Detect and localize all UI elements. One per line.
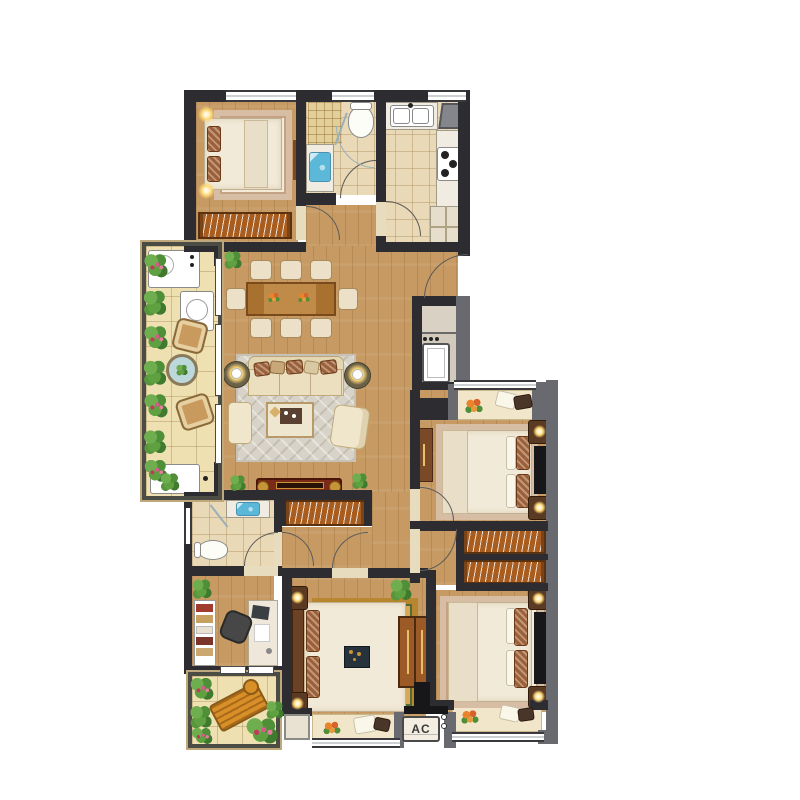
wardrobe-strip-2 xyxy=(462,560,546,584)
master-wardrobe-divider xyxy=(414,618,416,686)
ac-drain-1 xyxy=(441,714,447,720)
bath-top-sink xyxy=(309,152,331,182)
master-pillow-1 xyxy=(306,610,320,652)
column-bedroom-br xyxy=(534,612,546,684)
bedroom-br-pillow-2 xyxy=(514,650,528,688)
sofa-pillow-5 xyxy=(319,359,338,375)
bedroom-right-lamp-1 xyxy=(533,425,546,438)
hallway-closet xyxy=(284,500,366,526)
tray-shell-2 xyxy=(292,414,296,418)
wall-master-left xyxy=(282,568,292,716)
bay-br-pillow-dark xyxy=(517,707,535,722)
balcony-slider-2 xyxy=(215,324,222,396)
books-2 xyxy=(196,615,213,623)
wall-topblock-bottom-r xyxy=(376,242,470,252)
balcony2-plants-1 xyxy=(190,676,214,702)
living-plant-left xyxy=(230,474,246,492)
books-1 xyxy=(196,604,213,612)
side-lamp-right xyxy=(352,369,363,380)
floor-plan: AC xyxy=(0,0,800,800)
wall-bedroom2-left xyxy=(410,390,420,489)
wall-right-exterior xyxy=(546,380,558,742)
ac-drain-2 xyxy=(441,723,447,729)
dining-chair-1 xyxy=(250,260,272,280)
bay-br-flowers xyxy=(458,706,482,728)
coffee-tray xyxy=(280,408,302,424)
toilet-lower-tank xyxy=(194,542,201,558)
bedroom-br-pillow-1 xyxy=(514,608,528,646)
fridge-inner xyxy=(427,348,445,378)
toilet-lower xyxy=(198,540,228,560)
wall-top-left xyxy=(184,90,196,252)
wall-niche-left xyxy=(412,296,422,390)
threshold-bed1 xyxy=(296,206,306,240)
column-bedroom2 xyxy=(534,446,546,494)
bedroom-br-throw xyxy=(448,602,478,702)
balcony-plants-4 xyxy=(144,358,166,388)
window-bath2 xyxy=(184,508,192,544)
master-bay-pier xyxy=(284,714,310,740)
sofa-pillow-4 xyxy=(303,360,320,375)
bedroom-br-lamp-1 xyxy=(532,592,545,605)
balcony-plants-2 xyxy=(144,288,166,318)
bay-window-master xyxy=(312,738,400,748)
pouf-left xyxy=(228,402,252,444)
threshold-vestibule2 xyxy=(410,529,420,573)
window-top-3 xyxy=(428,90,466,102)
hallway-vertical-floor xyxy=(372,492,410,578)
burner-2 xyxy=(449,160,457,168)
balcony-plants-1 xyxy=(144,252,168,280)
master-wardrobe-handle-1 xyxy=(407,630,409,674)
dining-chair-4 xyxy=(250,318,272,338)
window-top-2 xyxy=(332,90,374,102)
dining-flowers-1 xyxy=(266,290,282,305)
closet-stub-right xyxy=(364,498,372,526)
entry-faucet-1 xyxy=(423,337,427,341)
balcony2-plants-2 xyxy=(190,704,212,730)
threshold-bedroom2 xyxy=(410,489,420,521)
bay-master-flowers xyxy=(320,718,344,738)
threshold-master xyxy=(332,568,368,578)
toilet-top-tank xyxy=(350,102,372,110)
bedroom-right-pillow-w2 xyxy=(506,474,516,508)
balcony2-plants-3 xyxy=(190,728,214,744)
dining-flowers-2 xyxy=(296,290,312,305)
wall-bath-kitchen xyxy=(376,100,386,202)
balcony-slider-1 xyxy=(215,258,222,316)
wall-wardrobe-divider xyxy=(458,554,548,560)
ac-label: AC xyxy=(411,722,430,736)
threshold-study xyxy=(244,566,278,576)
bedroom-br-lamp-2 xyxy=(532,690,545,703)
wall-bed1-bath xyxy=(296,100,306,206)
wardrobe-strip-1 xyxy=(462,529,546,554)
bedroom-top-bed-throw xyxy=(244,120,268,188)
study-balcony-slider-2 xyxy=(248,666,274,674)
threshold-kitchen xyxy=(376,202,386,236)
side-lamp-left xyxy=(231,368,242,379)
armchair-right xyxy=(329,404,370,451)
burner-1 xyxy=(441,151,449,159)
ac-wall-black-h xyxy=(404,706,448,714)
dining-chair-2 xyxy=(280,260,302,280)
tray-item-1 xyxy=(349,650,353,654)
books-3 xyxy=(196,626,213,634)
master-bed-tray xyxy=(344,646,370,668)
kitchen-sink-basin-1 xyxy=(393,108,410,124)
wall-top-right xyxy=(458,90,470,256)
bath-lower-sink xyxy=(236,502,260,516)
study-plant xyxy=(192,578,212,600)
wall-niche-right xyxy=(456,296,470,390)
entry-faucet-3 xyxy=(435,337,439,341)
balcony2-plants-4 xyxy=(244,718,280,744)
master-wardrobe-handle-2 xyxy=(421,630,423,674)
wall-bedroom-br-top xyxy=(456,583,548,591)
living-plant-right xyxy=(352,472,368,490)
sofa-pillow-3 xyxy=(285,359,303,374)
wall-bath2-right xyxy=(274,492,282,532)
balcony-plants-6 xyxy=(144,428,166,456)
tray-shell-1 xyxy=(284,411,288,415)
sconce-lamp-2 xyxy=(198,182,215,199)
bedroom-top-wardrobe xyxy=(198,212,292,239)
hallway-plant xyxy=(390,578,412,602)
balcony-plants-5 xyxy=(144,392,168,420)
dining-plant xyxy=(224,250,242,270)
master-pillow-2 xyxy=(306,656,320,698)
laptop xyxy=(251,605,270,620)
bedroom-top-pillow-1 xyxy=(207,126,221,152)
balcony2-plants-5 xyxy=(266,700,284,720)
books-5 xyxy=(196,648,213,656)
tray-item-3 xyxy=(353,658,356,661)
sofa-pillow-2 xyxy=(269,360,285,374)
ac-unit: AC xyxy=(402,716,440,742)
burner-3 xyxy=(441,169,449,177)
wall-bath-bottom-l xyxy=(300,193,336,205)
balcony-plants-3 xyxy=(144,324,168,352)
dining-chair-8 xyxy=(338,288,358,310)
bay-window-right xyxy=(454,380,536,390)
bedroom-right-lamp-2 xyxy=(533,501,546,514)
master-lamp-2 xyxy=(291,697,304,710)
master-lamp-1 xyxy=(291,591,304,604)
kitchen-faucet xyxy=(408,103,413,108)
desk-paper xyxy=(254,624,270,642)
dining-chair-7 xyxy=(226,288,246,310)
books-4 xyxy=(196,637,213,645)
bay-window-br xyxy=(452,732,544,742)
balcony-plants-8 xyxy=(160,472,180,492)
balcony-slider-3 xyxy=(215,404,222,464)
dining-chair-5 xyxy=(280,318,302,338)
kitchen-sink-basin-2 xyxy=(412,108,429,124)
bay-right-flowers xyxy=(462,394,486,418)
tv-screen xyxy=(276,482,324,489)
sconce-lamp-1 xyxy=(198,106,215,123)
sofa-pillow-1 xyxy=(253,361,271,377)
dining-chair-6 xyxy=(310,318,332,338)
dining-chair-3 xyxy=(310,260,332,280)
entry-faucet-2 xyxy=(429,337,433,341)
closet-stub-left xyxy=(282,498,286,526)
bedroom-right-pillow-w1 xyxy=(506,436,516,470)
bedroom-top-pillow-2 xyxy=(207,156,221,182)
study-balcony-slider-1 xyxy=(220,666,246,674)
desk-mug xyxy=(266,648,272,654)
window-top-1 xyxy=(226,90,296,102)
tray-item-2 xyxy=(357,652,361,656)
bedroom-right-cabinet-handle xyxy=(423,444,425,466)
